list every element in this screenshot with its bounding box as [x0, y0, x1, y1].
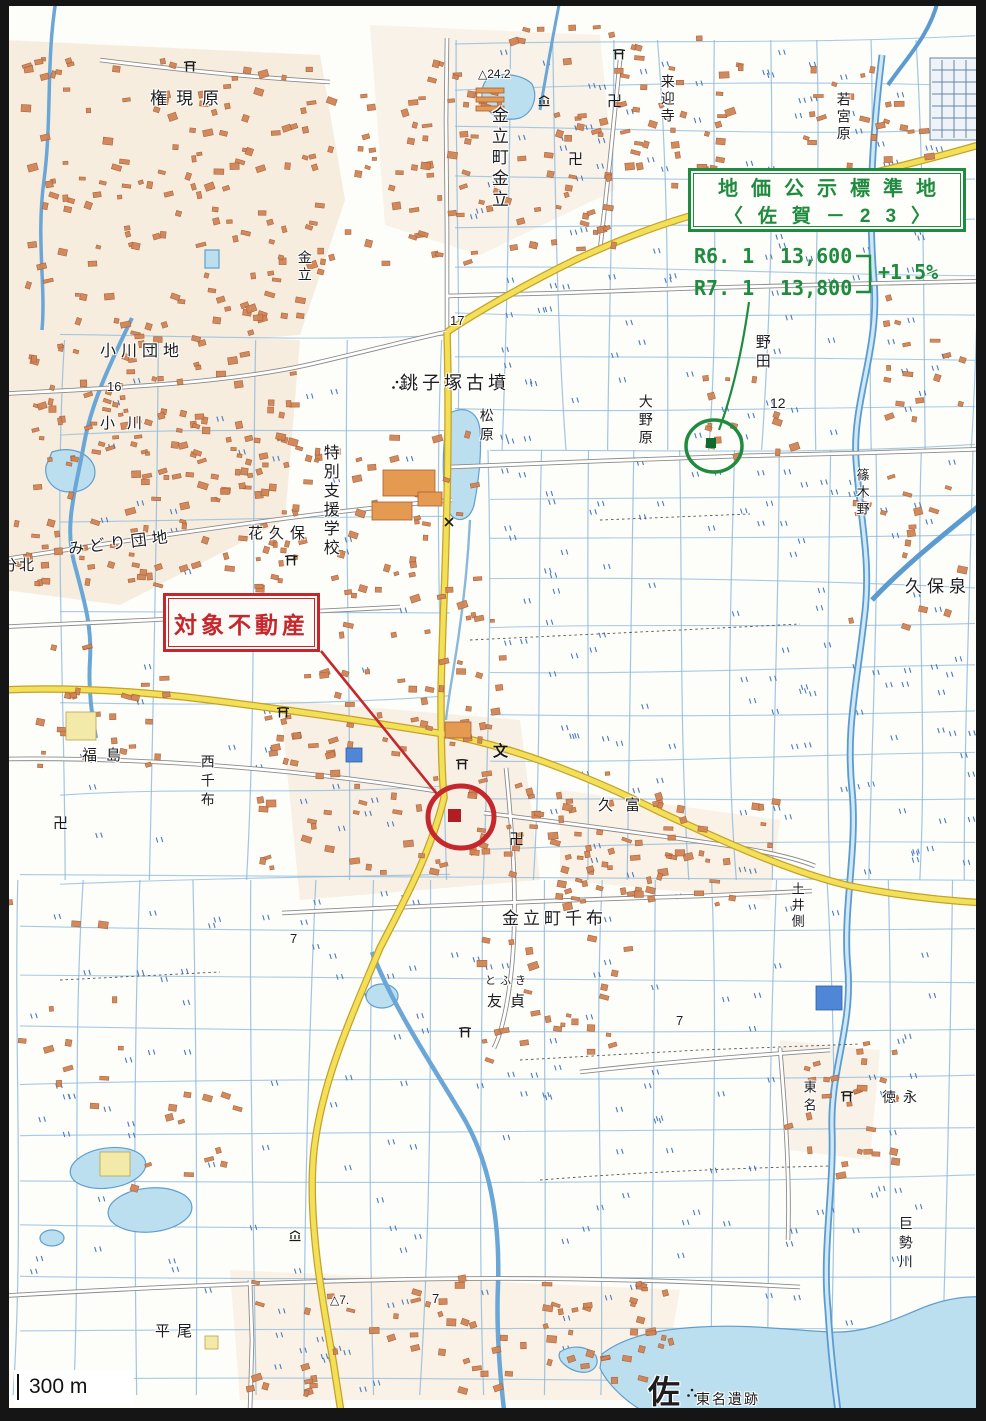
subject-property-box-inner: 対象不動産 [168, 598, 315, 647]
standard-site-title: 地価公示標準地 [718, 172, 949, 201]
price-date: R6. 1 [694, 244, 780, 268]
scale-tick [17, 1374, 19, 1400]
appraisal-map-page: 権現原小川団地小川みどり団地分北金立町金立金立来迎寺若宮原銚子塚古墳松原大野原野… [0, 0, 986, 1421]
scan-border-left [0, 0, 9, 1421]
price-value: 13,600 [780, 244, 852, 268]
price-value: 13,800 [780, 276, 852, 300]
scan-border-right [976, 0, 986, 1421]
dense-area-hatch [930, 58, 978, 140]
scan-border-bottom [0, 1408, 986, 1421]
subject-property-label: 対象不動産 [174, 606, 309, 640]
standard-site-label-box: 地価公示標準地 〈佐賀－23〉 [688, 168, 966, 232]
standard-site-label-inner: 地価公示標準地 〈佐賀－23〉 [693, 173, 961, 227]
price-row-r7: R7. 1 13,800 [694, 276, 852, 300]
scale-indicator: 300 m [14, 1370, 134, 1404]
scale-label: 300 m [29, 1375, 87, 1399]
price-row-r6: R6. 1 13,600 [694, 244, 852, 268]
price-date: R7. 1 [694, 276, 780, 300]
price-change-label: +1.5% [878, 260, 938, 284]
subject-property-box: 対象不動産 [163, 593, 320, 652]
scan-border-top [0, 0, 986, 6]
standard-site-number: 〈佐賀－23〉 [724, 201, 945, 228]
